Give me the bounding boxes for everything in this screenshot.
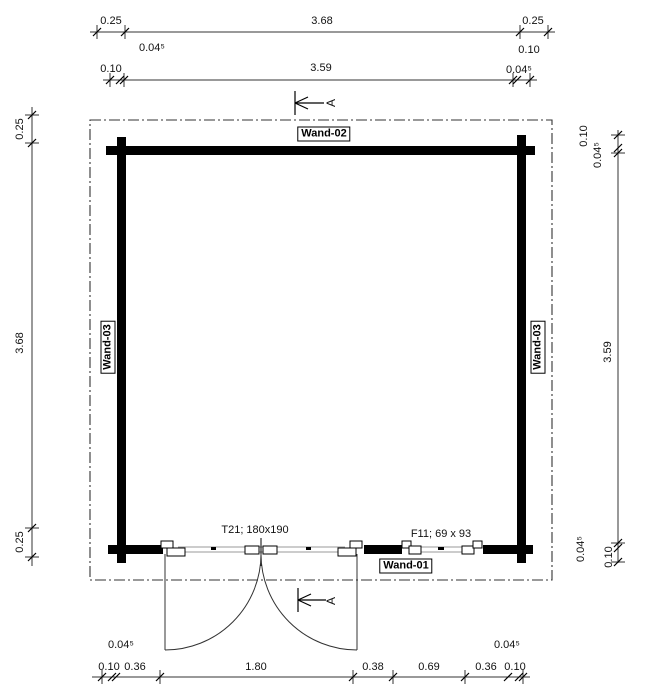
section-marker-top — [295, 91, 324, 115]
walls — [106, 135, 535, 563]
roof-overhang-outline — [90, 120, 552, 580]
wall-right — [517, 135, 526, 563]
wall-label-wand-01: Wand-01 — [379, 559, 432, 574]
section-letter-bottom: A — [324, 597, 338, 605]
dim-label: 0.04⁵ — [506, 64, 532, 76]
wall-label-wand-03-left: Wand-03 — [101, 320, 116, 373]
window-frame-right — [462, 546, 474, 554]
door-swing-arc-left — [165, 554, 261, 650]
wall-bottom-seg-right — [483, 545, 533, 554]
dim-label: 0.04⁵ — [592, 142, 604, 168]
dim-label: 0.25 — [522, 15, 543, 27]
dim-label: 0.04⁵ — [139, 42, 165, 54]
dim-label: 0.25 — [14, 118, 26, 139]
section-letter-top: A — [324, 99, 338, 107]
dim-label: 0.04⁵ — [575, 536, 587, 562]
dim-label: 0.36 — [475, 661, 496, 673]
dim-label: 0.04⁵ — [108, 639, 134, 651]
dim-label: 1.80 — [245, 661, 266, 673]
sill-lines — [178, 547, 472, 552]
door-center-post — [245, 546, 259, 554]
dim-label: 3.59 — [602, 341, 614, 362]
dim-label: 0.10 — [603, 546, 615, 567]
dim-label: 0.10 — [578, 125, 590, 146]
door-jamb-right — [350, 541, 362, 548]
dim-label: 3.59 — [310, 62, 331, 74]
floor-plan: 0.25 3.68 0.25 0.04⁵ 0.10 0.10 3.59 0.04… — [0, 0, 653, 698]
section-marker-bottom — [298, 588, 326, 612]
dim-label: 3.68 — [311, 15, 332, 27]
dim-label: 0.25 — [100, 15, 121, 27]
door-label: T21; 180x190 — [221, 524, 288, 536]
window-label: F11; 69 x 93 — [411, 528, 471, 540]
dim-label: 3.68 — [14, 332, 26, 353]
wall-bottom-seg-mid — [364, 545, 402, 554]
dim-label: 0.10 — [518, 44, 539, 56]
wall-top — [106, 146, 535, 155]
wall-label-wand-03-right: Wand-03 — [531, 320, 546, 373]
dim-label: 0.10 — [98, 661, 119, 673]
dim-label: 0.04⁵ — [494, 639, 520, 651]
dim-label: 0.36 — [124, 661, 145, 673]
dim-label: 0.10 — [504, 661, 525, 673]
dim-label: 0.10 — [100, 63, 121, 75]
wall-left — [117, 137, 126, 563]
wall-label-wand-02: Wand-02 — [297, 127, 350, 142]
door-jamb-left — [161, 541, 173, 548]
wall-bottom-seg-left — [108, 545, 163, 554]
door-window-frames — [161, 541, 482, 556]
dim-label: 0.38 — [362, 661, 383, 673]
dim-label: 0.25 — [14, 531, 26, 552]
door-swing-arc-right — [261, 554, 357, 650]
dim-label: 0.69 — [418, 661, 439, 673]
